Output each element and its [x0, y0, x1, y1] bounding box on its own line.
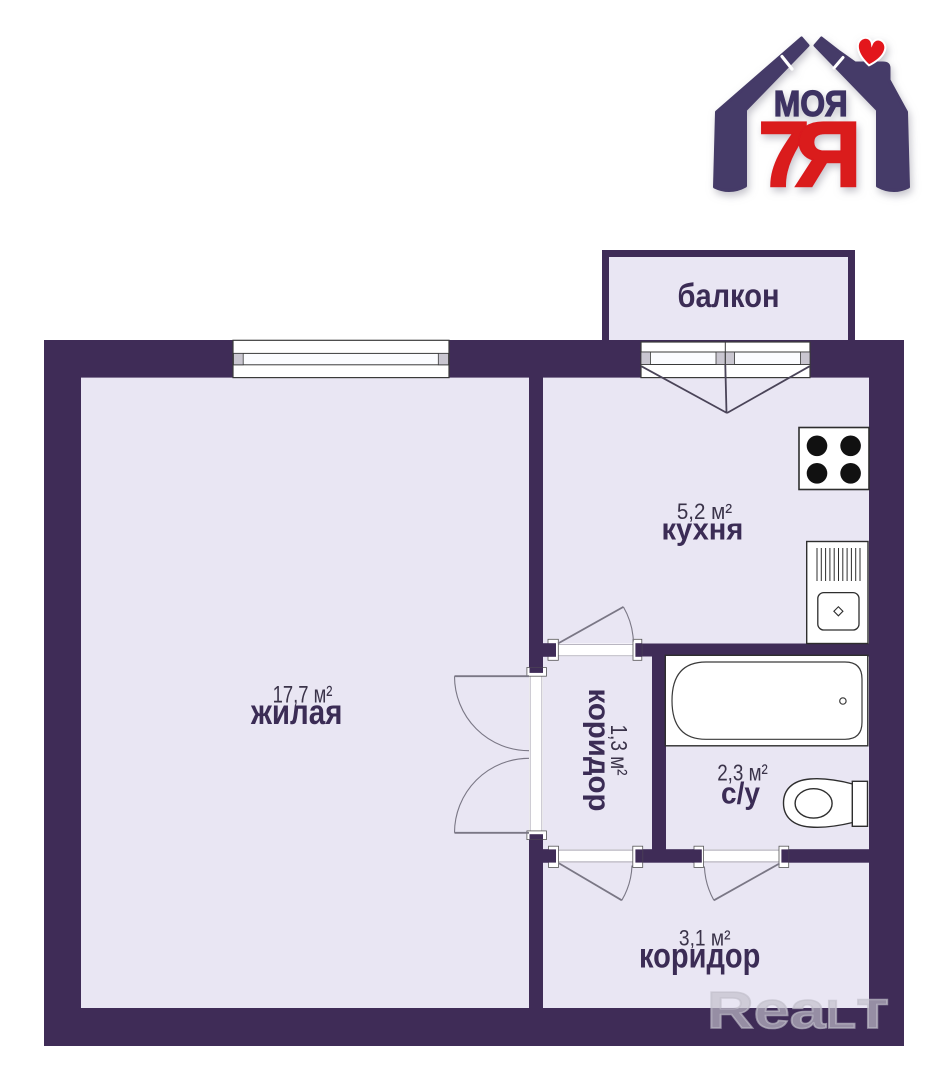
svg-text:с/у: с/у — [721, 776, 761, 811]
svg-text:жилая: жилая — [250, 693, 342, 732]
svg-text:кухня: кухня — [662, 512, 744, 547]
svg-text:коридор: коридор — [582, 689, 615, 812]
svg-text:ReaLт: ReaLт — [707, 980, 889, 1040]
svg-text:Я: Я — [795, 104, 861, 206]
svg-text:балкон: балкон — [678, 277, 780, 314]
svg-text:коридор: коридор — [639, 937, 760, 976]
